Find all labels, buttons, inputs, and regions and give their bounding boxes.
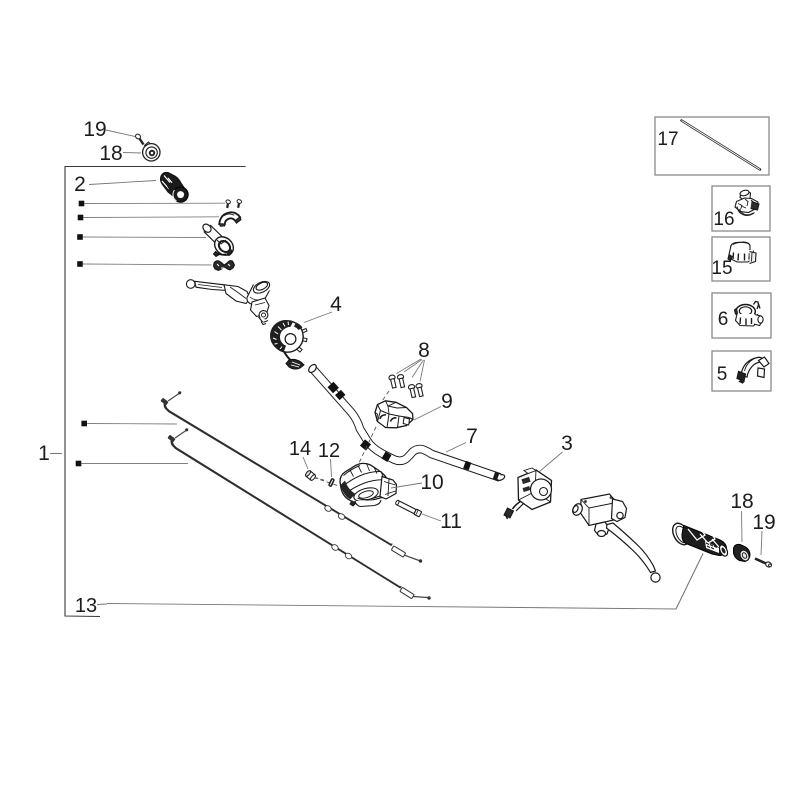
svg-text:5: 5 [717,364,728,385]
svg-text:18: 18 [99,142,122,165]
svg-text:10: 10 [420,471,443,494]
svg-text:3: 3 [561,432,573,455]
svg-text:14: 14 [289,438,311,460]
svg-text:8: 8 [418,339,430,362]
svg-text:15: 15 [711,258,732,279]
svg-text:18: 18 [730,490,753,513]
svg-text:4: 4 [330,293,342,316]
svg-text:1: 1 [38,442,50,465]
svg-text:17: 17 [657,129,678,150]
svg-text:2: 2 [74,173,86,196]
svg-text:16: 16 [713,209,734,230]
svg-text:7: 7 [466,425,478,448]
svg-text:12: 12 [318,440,340,462]
svg-text:19: 19 [83,118,106,141]
svg-text:19: 19 [752,511,775,534]
svg-text:11: 11 [440,510,462,533]
svg-text:9: 9 [441,390,453,413]
svg-text:6: 6 [718,309,729,330]
svg-text:13: 13 [75,595,97,617]
